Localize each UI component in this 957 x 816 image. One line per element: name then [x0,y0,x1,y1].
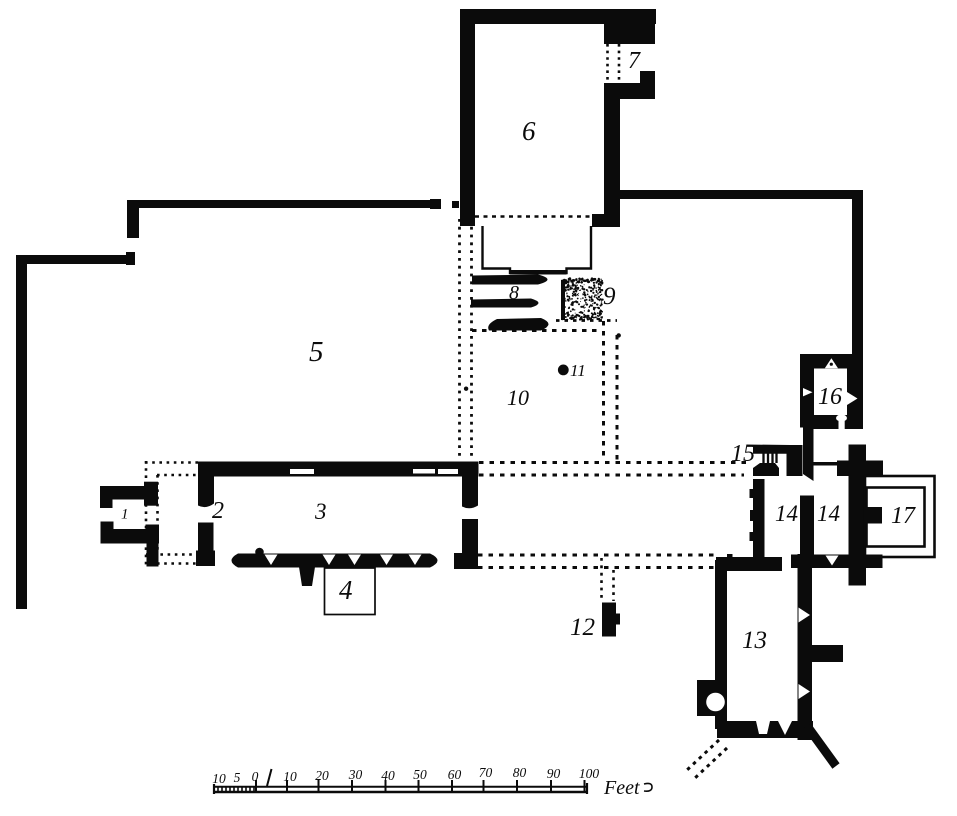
svg-text:14: 14 [817,501,840,526]
svg-text:90: 90 [547,766,561,781]
svg-text:70: 70 [479,765,493,780]
svg-text:5: 5 [309,336,324,368]
svg-text:15: 15 [731,441,755,467]
svg-text:20: 20 [315,768,329,783]
svg-text:7: 7 [628,48,641,74]
svg-text:5: 5 [234,770,241,785]
svg-text:2: 2 [212,498,224,524]
svg-text:10: 10 [283,769,297,784]
svg-text:3: 3 [314,499,327,524]
svg-text:6: 6 [522,116,536,146]
svg-text:10: 10 [507,385,529,410]
svg-text:12: 12 [570,614,595,641]
svg-text:30: 30 [348,767,363,782]
svg-text:11: 11 [570,361,586,380]
svg-text:80: 80 [513,765,527,780]
svg-text:100: 100 [579,766,600,781]
svg-text:60: 60 [448,767,462,782]
svg-text:8: 8 [509,282,519,304]
svg-text:1: 1 [121,507,129,523]
svg-text:40: 40 [381,768,395,783]
svg-text:4: 4 [339,575,353,605]
svg-text:10: 10 [212,771,226,786]
svg-text:14: 14 [775,501,798,526]
svg-text:16: 16 [818,384,842,410]
svg-text:13: 13 [742,627,767,654]
svg-text:50: 50 [413,767,427,782]
svg-text:0: 0 [252,769,259,784]
svg-text:Feet: Feet [603,777,640,799]
svg-text:17: 17 [891,503,916,529]
svg-text:9: 9 [603,283,616,310]
